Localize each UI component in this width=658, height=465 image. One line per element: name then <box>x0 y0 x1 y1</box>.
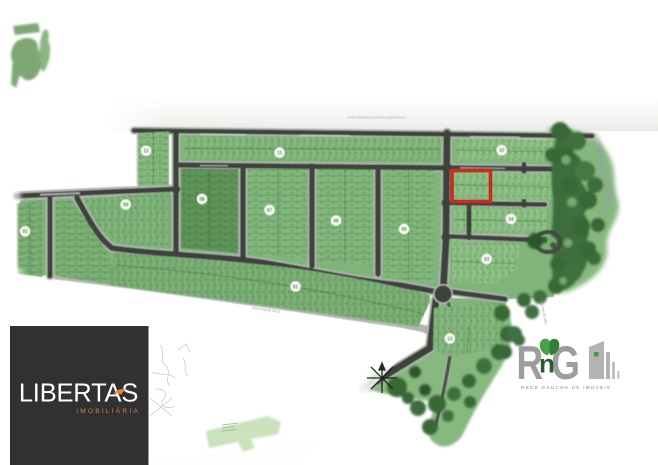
svg-text:REDE GAUCHA DE IMOVEIS: REDE GAUCHA DE IMOVEIS <box>521 385 611 391</box>
svg-text:IMOBILIÁRIA: IMOBILIÁRIA <box>76 406 140 415</box>
svg-text:n: n <box>539 349 555 379</box>
